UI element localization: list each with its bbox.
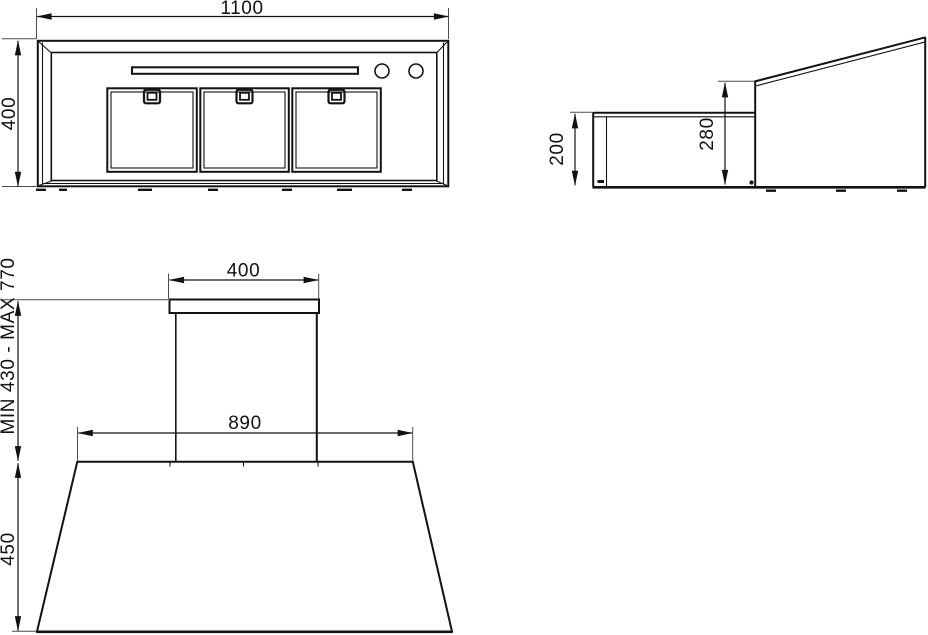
side-chimney-outline <box>755 37 926 187</box>
hood-dimension-drawing: 1100 400 <box>0 0 928 635</box>
dimension-label-canopy-height: 450 <box>0 532 19 566</box>
technical-drawing-sheet: 1100 400 <box>0 0 928 635</box>
filter-latch-button <box>332 93 341 100</box>
screw-mark-left <box>598 180 605 183</box>
dimension-label-hood-top-width: 890 <box>228 413 262 434</box>
hood-outer-frame <box>38 41 449 187</box>
dim-chimney-height-range: MIN 430 - MAX 770 <box>0 257 168 460</box>
dimension-label-chimney-height-range: MIN 430 - MAX 770 <box>0 257 19 434</box>
dim-depth-400: 400 <box>0 39 37 187</box>
dim-width-1100: 1100 <box>37 0 449 39</box>
grease-filter-panels <box>107 88 381 172</box>
front-view: MIN 430 - MAX 770 450 400 890 <box>0 257 453 631</box>
dim-chimney-width-400: 400 <box>169 261 319 299</box>
bottom-view: 1100 400 <box>0 0 449 190</box>
dimension-label-width: 1100 <box>220 0 263 19</box>
canopy-outline <box>37 462 452 632</box>
filter-panel-3 <box>292 88 381 172</box>
dimension-label-front-height: 200 <box>547 132 568 166</box>
dim-rear-height-280: 280 <box>697 81 754 184</box>
side-body-outline <box>593 81 926 187</box>
frame-miter-lines <box>39 42 447 186</box>
hood-inner-frame <box>51 53 437 181</box>
chimney <box>170 300 320 462</box>
filter-panel-1 <box>107 88 197 172</box>
dim-hood-top-width-890: 890 <box>78 413 413 461</box>
dimension-label-rear-height: 280 <box>697 117 718 151</box>
chimney-upper-section <box>170 300 320 314</box>
control-knob-left <box>375 64 389 78</box>
dim-front-height-200: 200 <box>547 112 592 185</box>
side-view: 200 280 <box>547 37 926 191</box>
dimension-label-depth: 400 <box>0 97 20 131</box>
dim-canopy-height-450: 450 <box>0 463 36 631</box>
dimension-label-chimney-width: 400 <box>227 261 261 282</box>
screw-mark-right <box>749 180 753 184</box>
filter-latch-button <box>148 93 157 100</box>
filter-panel-2 <box>200 88 288 172</box>
filter-latch-button <box>240 93 249 100</box>
light-strip <box>132 67 358 74</box>
canopy <box>37 462 453 632</box>
control-knob-right <box>409 64 423 78</box>
